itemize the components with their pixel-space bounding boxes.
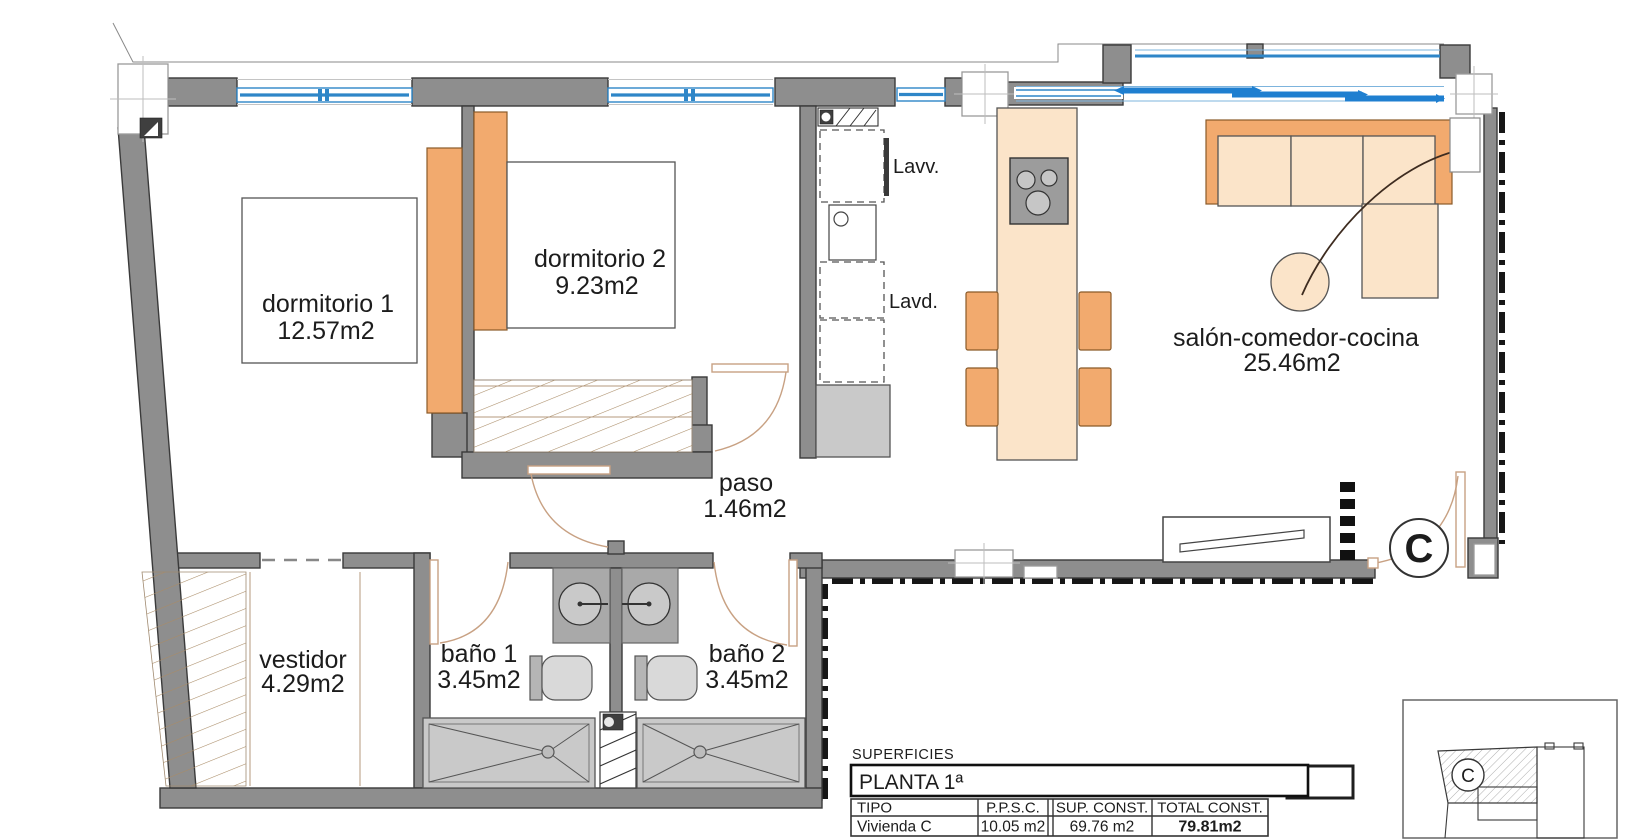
washer-outline2 xyxy=(820,320,884,382)
utility-counter xyxy=(816,385,890,457)
label-bano1-name: baño 1 xyxy=(441,640,517,668)
label-bano2-name: baño 2 xyxy=(709,640,785,668)
label-paso-name: paso xyxy=(719,469,773,497)
duct-shaft xyxy=(600,712,636,788)
label-washer: Lavd. xyxy=(889,291,938,313)
sofa xyxy=(1206,120,1452,298)
vanity-bano2 xyxy=(622,568,678,643)
floor-plan-drawing: C dormitorio 1 12.57m2 dormitorio 2 9.23… xyxy=(0,0,1638,840)
tv-unit xyxy=(1163,517,1330,562)
label-dormitorio2-name: dormitorio 2 xyxy=(534,245,666,273)
dormitorio1-furniture xyxy=(242,148,462,413)
hob xyxy=(1010,158,1068,224)
window-kitchen xyxy=(897,88,945,101)
label-paso-area: 1.46m2 xyxy=(703,495,786,523)
shower-bano1 xyxy=(423,718,595,788)
wardrobe-dorm2 xyxy=(474,380,692,452)
toilet-bano2 xyxy=(635,656,697,700)
utility-sink xyxy=(829,205,876,260)
chair xyxy=(966,368,998,426)
label-bano2-area: 3.45m2 xyxy=(705,666,788,694)
chair xyxy=(1079,292,1111,350)
wardrobe-strip-dorm1 xyxy=(427,148,462,413)
utility-column xyxy=(816,108,890,457)
col-total-const: TOTAL CONST. xyxy=(1157,800,1263,817)
key-plan: C xyxy=(1287,700,1617,838)
surface-table-floor: PLANTA 1ª xyxy=(859,771,963,794)
label-vestidor-area: 4.29m2 xyxy=(261,670,344,698)
headboard-dorm2 xyxy=(474,112,507,330)
label-dormitorio2-area: 9.23m2 xyxy=(555,272,638,300)
lamp-base xyxy=(1450,118,1480,172)
label-dormitorio1-area: 12.57m2 xyxy=(277,317,374,345)
door-bano2 xyxy=(714,560,797,646)
floor-plan-page: C dormitorio 1 12.57m2 dormitorio 2 9.23… xyxy=(0,0,1638,840)
window-dormitorio1 xyxy=(237,80,412,105)
door-dormitorio2 xyxy=(712,364,788,451)
sliding-glass-door xyxy=(1014,50,1445,103)
label-bano1-area: 3.45m2 xyxy=(437,666,520,694)
vanity-bano1 xyxy=(553,568,610,643)
label-salon-area: 25.46m2 xyxy=(1243,349,1340,377)
col-sup-const: SUP. CONST. xyxy=(1056,800,1148,817)
door-frame-mark xyxy=(884,138,889,196)
key-plan-unit-letter: C xyxy=(1461,766,1475,787)
unit-marker-letter: C xyxy=(1405,527,1434,571)
wall-niche xyxy=(1024,566,1057,578)
shower-bano2 xyxy=(637,718,805,788)
chair xyxy=(1079,368,1111,426)
col-tipo: TIPO xyxy=(857,800,892,817)
col-ppsc: P.P.S.C. xyxy=(986,800,1040,817)
column-top-right xyxy=(1450,66,1498,122)
label-salon-name: salón-comedor-cocina xyxy=(1173,324,1419,352)
surface-table: SUPERFICIES PLANTA 1ª TIPO P.P.S.C. SUP.… xyxy=(851,747,1308,836)
door-bano1 xyxy=(430,560,508,644)
column-bottom-right xyxy=(1474,544,1495,575)
washer-outline xyxy=(820,262,884,318)
surface-table-title: SUPERFICIES xyxy=(852,747,954,763)
cell-ppsc: 10.05 m2 xyxy=(981,819,1046,836)
label-dishwasher: Lavv. xyxy=(893,156,939,178)
chair xyxy=(966,292,998,350)
toilet-bano1 xyxy=(530,656,592,700)
dishwasher-outline xyxy=(820,130,884,202)
shelf-hatch xyxy=(818,108,878,126)
label-dormitorio1-name: dormitorio 1 xyxy=(262,290,394,318)
kitchen-island xyxy=(966,108,1111,460)
unit-marker: C xyxy=(1390,519,1448,577)
cell-total-const: 79.81m2 xyxy=(1178,819,1241,836)
cell-sup-const: 69.76 m2 xyxy=(1070,819,1135,836)
privacy-screen-dashes xyxy=(1340,482,1355,560)
window-dormitorio2 xyxy=(608,80,773,105)
cell-tipo: Vivienda C xyxy=(857,819,932,836)
